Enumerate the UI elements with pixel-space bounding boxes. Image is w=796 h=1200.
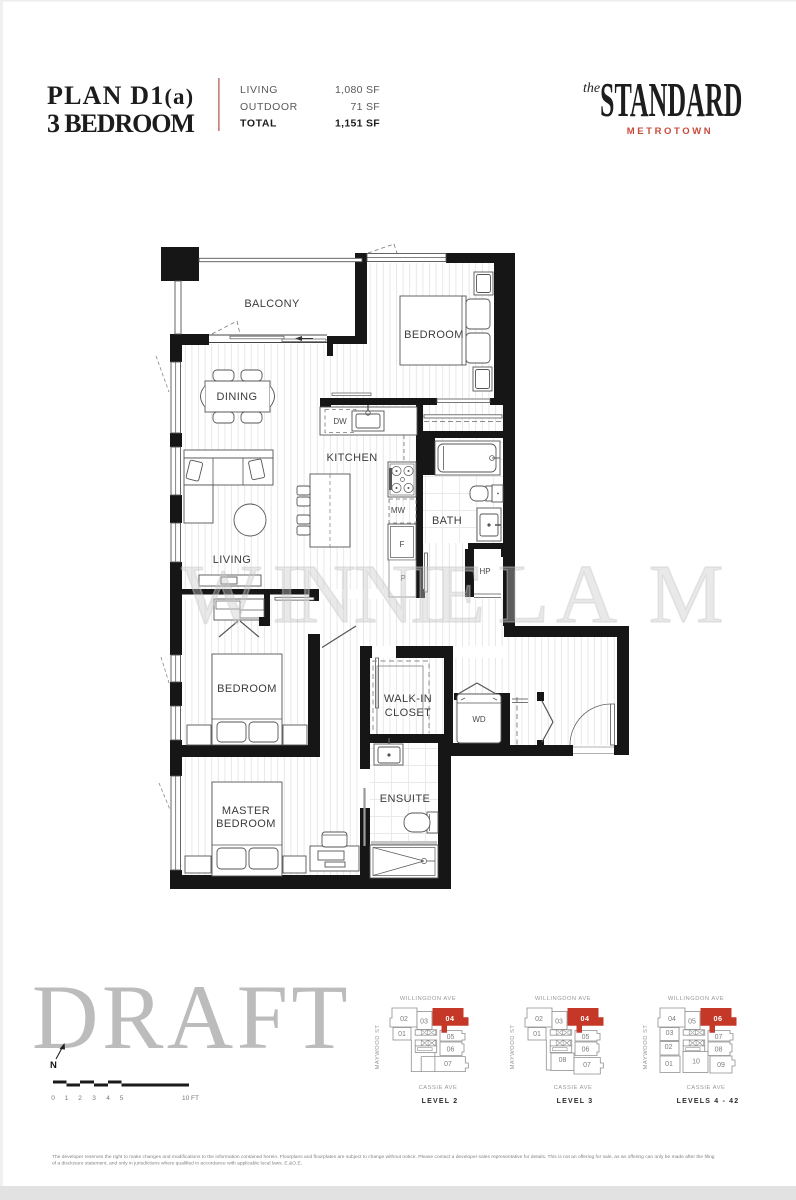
svg-text:MAYWOOD ST: MAYWOOD ST [643, 1025, 649, 1070]
svg-text:WD: WD [472, 715, 486, 724]
svg-text:LIVING: LIVING [240, 84, 278, 96]
svg-text:02: 02 [535, 1016, 543, 1023]
svg-text:DW: DW [333, 417, 347, 426]
svg-text:10 FT: 10 FT [182, 1095, 199, 1102]
svg-text:1,080 SF: 1,080 SF [335, 84, 380, 96]
svg-text:STANDARD: STANDARD [600, 74, 742, 128]
svg-text:08: 08 [559, 1057, 567, 1064]
svg-text:DRAFT: DRAFT [32, 966, 351, 1068]
svg-text:WILLINGDON AVE: WILLINGDON AVE [400, 996, 456, 1002]
svg-text:LEVEL 2: LEVEL 2 [422, 1098, 459, 1105]
svg-text:WILLINGDON AVE: WILLINGDON AVE [535, 996, 591, 1002]
svg-text:PLAN D1(a): PLAN D1(a) [47, 81, 194, 110]
svg-text:07: 07 [444, 1061, 452, 1068]
svg-text:CASSIE AVE: CASSIE AVE [554, 1085, 593, 1091]
svg-text:05: 05 [447, 1034, 455, 1041]
svg-text:05: 05 [688, 1019, 696, 1026]
svg-text:MAYWOOD ST: MAYWOOD ST [375, 1025, 381, 1070]
svg-text:02: 02 [400, 1016, 408, 1023]
svg-text:MAYWOOD ST: MAYWOOD ST [510, 1025, 516, 1070]
svg-text:BEDROOM: BEDROOM [216, 818, 276, 830]
svg-text:02: 02 [665, 1044, 673, 1051]
svg-text:ENSUITE: ENSUITE [380, 793, 430, 805]
svg-text:MW: MW [391, 506, 406, 515]
svg-text:01: 01 [533, 1031, 541, 1038]
svg-text:CASSIE AVE: CASSIE AVE [687, 1085, 726, 1091]
svg-text:MASTER: MASTER [222, 805, 270, 817]
svg-text:2: 2 [78, 1095, 82, 1102]
svg-text:BATH: BATH [432, 515, 462, 527]
svg-text:04: 04 [446, 1014, 455, 1023]
svg-text:5: 5 [120, 1095, 124, 1102]
svg-text:1: 1 [65, 1095, 69, 1102]
svg-text:CLOSET: CLOSET [385, 707, 431, 719]
svg-text:The developer reserves the rig: The developer reserves the right to make… [52, 1154, 715, 1160]
svg-text:BEDROOM: BEDROOM [404, 329, 464, 341]
svg-text:KITCHEN: KITCHEN [326, 452, 377, 464]
svg-text:07: 07 [715, 1034, 723, 1041]
svg-text:TOTAL: TOTAL [240, 118, 277, 130]
svg-text:06: 06 [714, 1014, 723, 1023]
svg-text:71 SF: 71 SF [350, 101, 380, 113]
svg-text:0: 0 [51, 1095, 55, 1102]
svg-text:08: 08 [715, 1047, 723, 1054]
svg-text:N: N [50, 1060, 57, 1071]
svg-text:BEDROOM: BEDROOM [217, 683, 277, 695]
svg-text:3: 3 [92, 1095, 96, 1102]
svg-text:06: 06 [582, 1047, 590, 1054]
svg-text:METROTOWN: METROTOWN [627, 126, 714, 137]
svg-text:1,151 SF: 1,151 SF [335, 118, 380, 130]
svg-text:WALK-IN: WALK-IN [384, 693, 432, 705]
svg-text:of a disclosure statement, and: of a disclosure statement, and only in j… [52, 1161, 302, 1167]
svg-text:the: the [583, 81, 600, 96]
svg-text:10: 10 [692, 1059, 700, 1066]
svg-text:07: 07 [583, 1062, 591, 1069]
svg-text:WILLINGDON AVE: WILLINGDON AVE [668, 996, 724, 1002]
svg-text:03: 03 [420, 1019, 428, 1026]
svg-text:03: 03 [555, 1019, 563, 1026]
svg-text:03: 03 [666, 1030, 674, 1037]
svg-text:4: 4 [106, 1095, 110, 1102]
svg-text:04: 04 [668, 1016, 676, 1023]
svg-text:04: 04 [581, 1014, 590, 1023]
svg-text:09: 09 [717, 1062, 725, 1069]
svg-text:01: 01 [665, 1061, 673, 1068]
svg-text:3 BEDROOM: 3 BEDROOM [47, 109, 194, 138]
svg-text:05: 05 [582, 1034, 590, 1041]
svg-text:BALCONY: BALCONY [244, 298, 300, 310]
svg-text:LEVEL 3: LEVEL 3 [557, 1098, 594, 1105]
svg-text:OUTDOOR: OUTDOOR [240, 101, 298, 113]
svg-text:DINING: DINING [217, 391, 258, 403]
svg-text:CASSIE AVE: CASSIE AVE [419, 1085, 458, 1091]
svg-text:01: 01 [398, 1031, 406, 1038]
svg-text:06: 06 [447, 1047, 455, 1054]
svg-text:LEVELS 4 - 42: LEVELS 4 - 42 [677, 1098, 740, 1105]
